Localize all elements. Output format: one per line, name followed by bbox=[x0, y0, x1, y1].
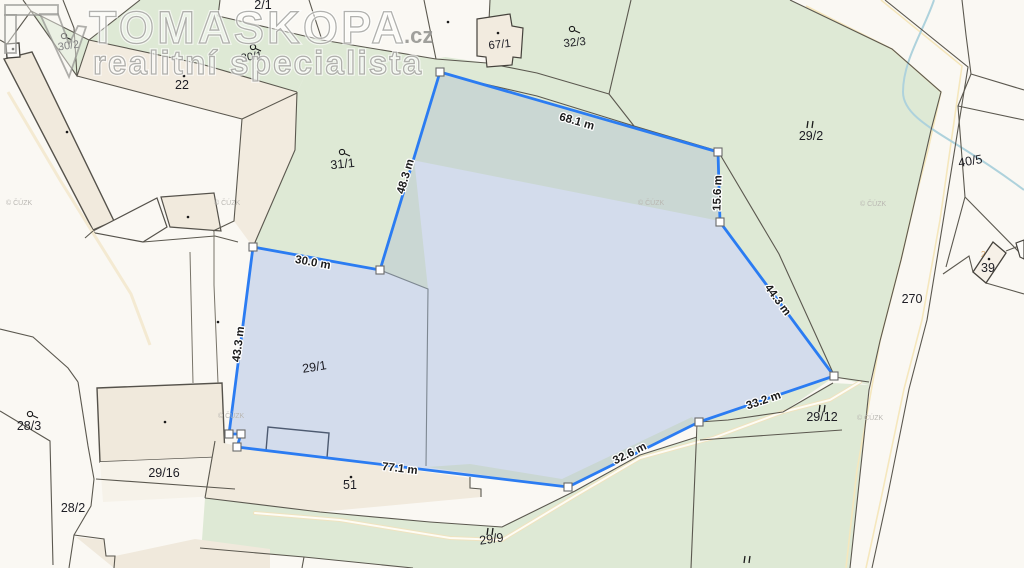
svg-text:270: 270 bbox=[902, 292, 923, 306]
svg-text:15.6 m: 15.6 m bbox=[711, 175, 724, 211]
svg-text:51: 51 bbox=[343, 478, 357, 492]
svg-text:67/1: 67/1 bbox=[488, 38, 512, 52]
svg-text:28/3: 28/3 bbox=[17, 419, 41, 433]
svg-text:29/16: 29/16 bbox=[148, 466, 179, 480]
svg-text:.cz: .cz bbox=[404, 23, 433, 48]
svg-text:© ČÚZK: © ČÚZK bbox=[6, 198, 32, 207]
svg-text:© ČÚZK: © ČÚZK bbox=[857, 413, 883, 422]
svg-text:29/2: 29/2 bbox=[799, 129, 823, 143]
svg-text:32/3: 32/3 bbox=[563, 36, 587, 50]
svg-text:39: 39 bbox=[981, 261, 995, 275]
svg-text:© ČÚZK: © ČÚZK bbox=[214, 198, 240, 207]
svg-text:© ČÚZK: © ČÚZK bbox=[638, 198, 664, 207]
svg-text:29/12: 29/12 bbox=[806, 410, 837, 424]
svg-text:28/2: 28/2 bbox=[61, 501, 85, 515]
svg-text:© ČÚZK: © ČÚZK bbox=[860, 199, 886, 208]
svg-text:31/1: 31/1 bbox=[330, 156, 356, 172]
svg-text:© ČÚZK: © ČÚZK bbox=[218, 411, 244, 420]
svg-text:realitní specialista: realitní specialista bbox=[93, 44, 423, 81]
